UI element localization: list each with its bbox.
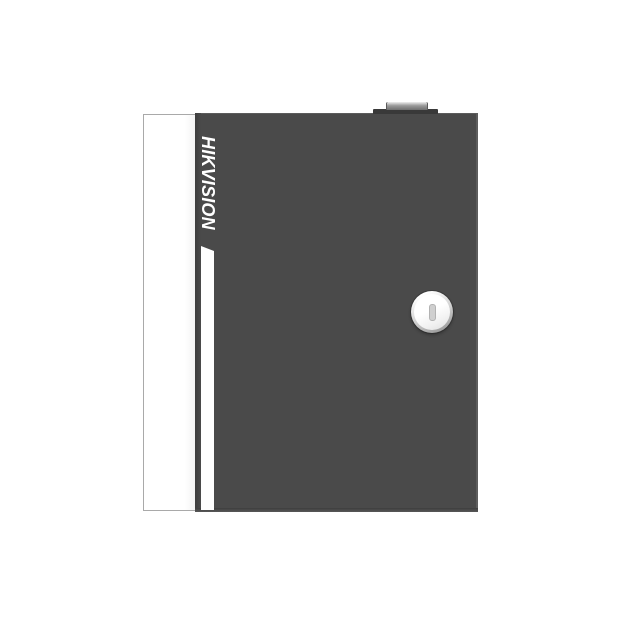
cam-lock-face bbox=[414, 294, 450, 330]
cam-lock bbox=[411, 291, 453, 333]
door-bottom-edge-shadow bbox=[195, 508, 478, 512]
product-photo: HIKVISION bbox=[0, 0, 620, 620]
brand-logo-text: HIKVISION bbox=[198, 136, 218, 233]
brand-logo: HIKVISION bbox=[198, 136, 218, 233]
door-right-edge-highlight bbox=[476, 113, 478, 512]
keyhole-slot-icon bbox=[429, 304, 436, 321]
enclosure-side-panel bbox=[143, 114, 196, 511]
accent-stripe bbox=[201, 246, 214, 510]
top-latch-cap bbox=[386, 102, 428, 110]
